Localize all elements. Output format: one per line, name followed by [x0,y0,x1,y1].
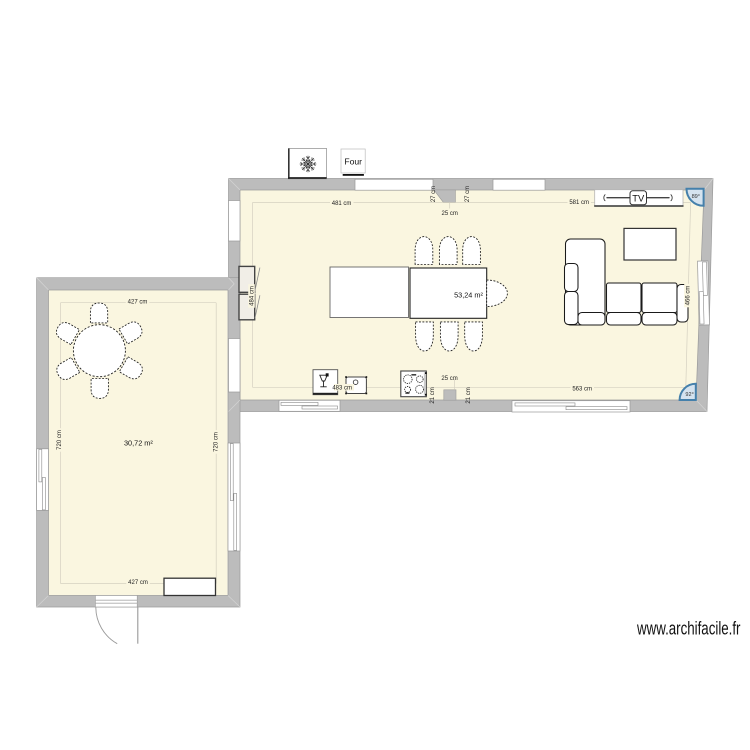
svg-text:481 cm: 481 cm [332,201,352,207]
svg-text:21 cm: 21 cm [466,387,472,403]
svg-text:720 cm: 720 cm [57,430,63,450]
svg-text:427 cm: 427 cm [128,580,148,586]
svg-text:563 cm: 563 cm [572,386,592,392]
svg-text:484 cm: 484 cm [250,286,256,306]
svg-text:27 cm: 27 cm [465,186,471,202]
svg-text:21 cm: 21 cm [430,387,436,403]
svg-text:Four: Four [344,156,362,166]
svg-text:427 cm: 427 cm [128,300,148,306]
svg-text:53,24 m²: 53,24 m² [454,290,483,299]
svg-text:92°: 92° [685,392,693,398]
svg-text:www.archifacile.fr: www.archifacile.fr [636,619,740,639]
svg-text:25 cm: 25 cm [442,211,458,217]
svg-text:TV: TV [632,193,645,204]
svg-text:720 cm: 720 cm [214,432,220,452]
svg-text:27 cm: 27 cm [431,186,437,202]
svg-text:581 cm: 581 cm [569,200,589,206]
svg-text:30,72 m²: 30,72 m² [124,438,153,447]
svg-text:466 cm: 466 cm [686,286,692,306]
svg-text:483 cm: 483 cm [332,385,352,391]
svg-text:25 cm: 25 cm [441,376,457,382]
svg-text:89°: 89° [692,194,700,200]
